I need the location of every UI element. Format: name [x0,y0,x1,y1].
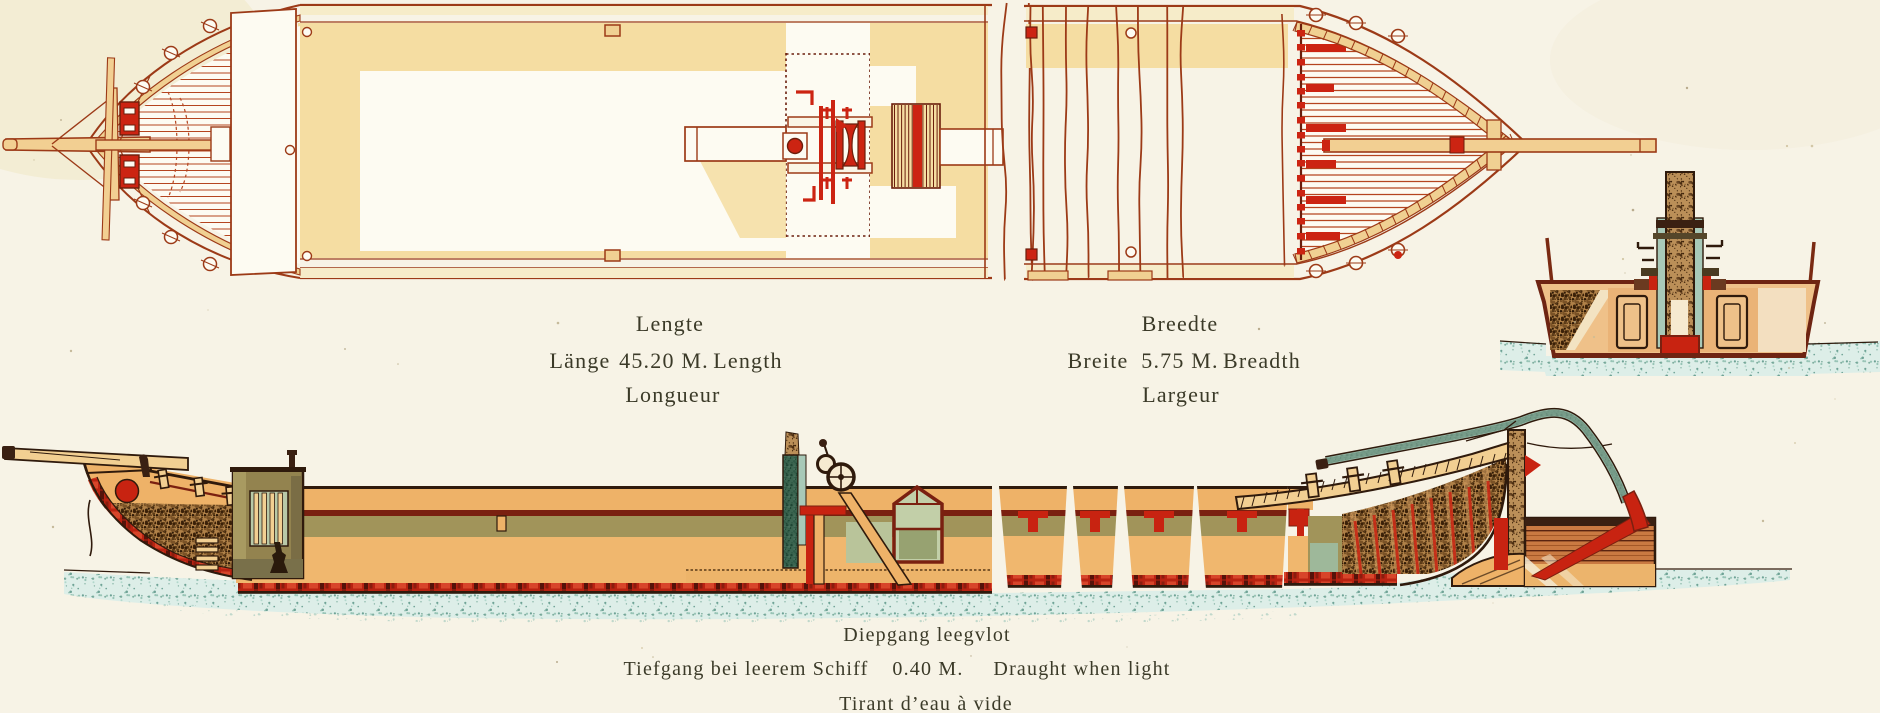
svg-text:Tirant d’eau à vide: Tirant d’eau à vide [839,693,1013,713]
svg-text:5.75 M.: 5.75 M. [1141,348,1218,373]
svg-text:Length: Length [713,348,783,373]
svg-text:Länge: Länge [550,348,611,373]
svg-text:Lengte: Lengte [636,311,704,336]
svg-text:Draught when light: Draught when light [993,658,1170,680]
svg-text:45.20 M.: 45.20 M. [619,348,709,373]
svg-text:Largeur: Largeur [1142,382,1220,407]
svg-text:Breadth: Breadth [1223,348,1301,373]
svg-text:Diepgang leegvlot: Diepgang leegvlot [843,624,1011,646]
svg-text:Longueur: Longueur [625,382,720,407]
svg-text:Tiefgang bei leerem Schiff: Tiefgang bei leerem Schiff [623,658,868,680]
svg-text:Breedte: Breedte [1142,311,1219,336]
svg-text:0.40 M.: 0.40 M. [892,658,963,680]
svg-text:Breite: Breite [1068,348,1129,373]
